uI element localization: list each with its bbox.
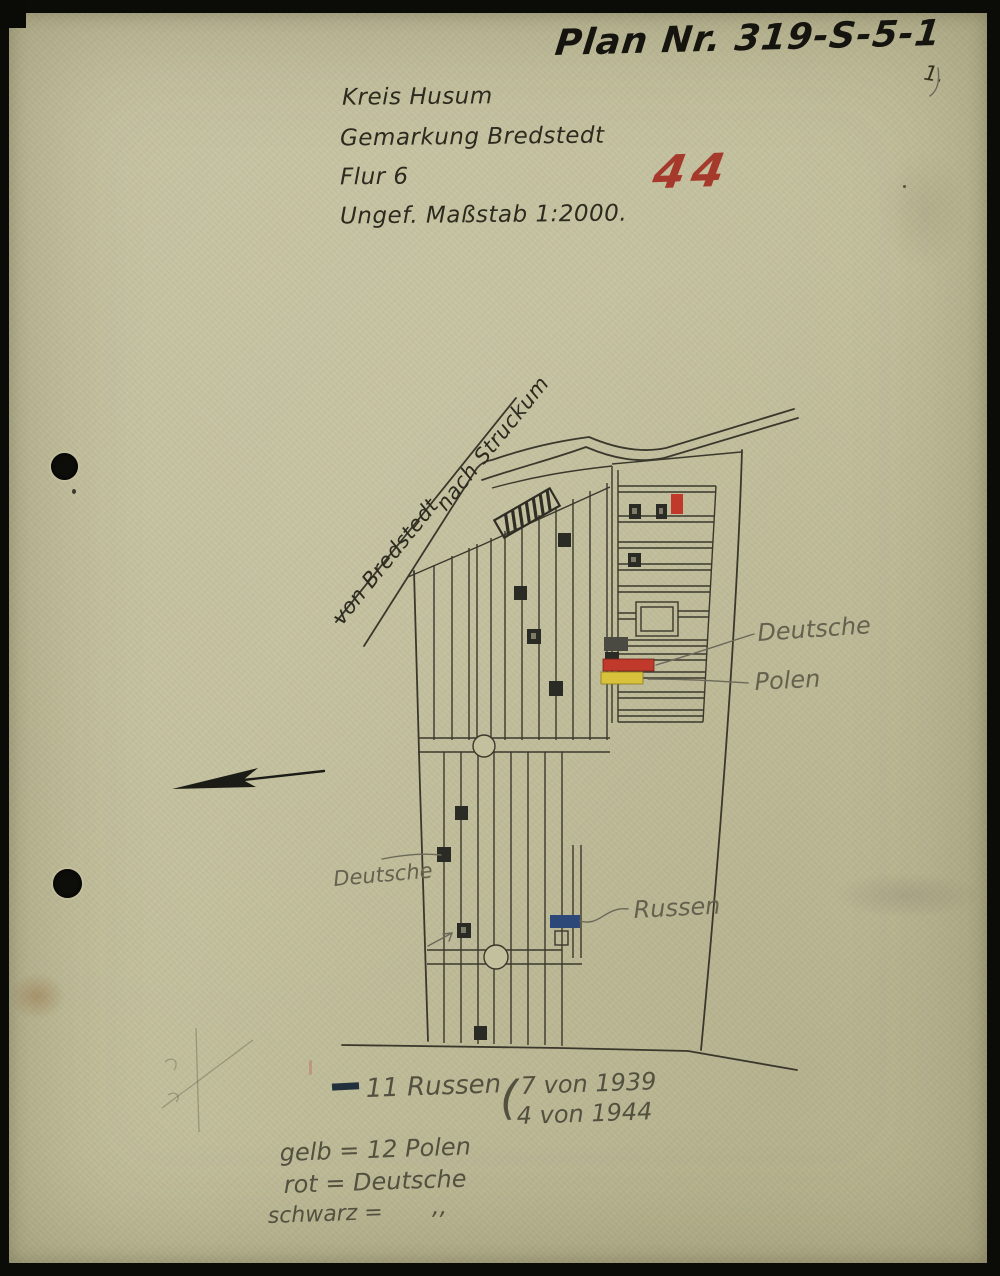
north-arrow bbox=[172, 768, 324, 789]
legend-russen-1944: 4 von 1944 bbox=[516, 1097, 653, 1130]
road-label-von-bredstedt: von Bredstedt bbox=[327, 494, 443, 630]
dark-bar bbox=[604, 637, 628, 651]
yellow-bar bbox=[601, 672, 643, 684]
pencil-scribbles bbox=[162, 1028, 253, 1132]
grave-markers bbox=[437, 494, 683, 1040]
legend-russen-count: 11 Russen bbox=[365, 1069, 501, 1104]
road-label-nach-struckum: nach Struckum bbox=[431, 372, 554, 515]
note-deutsche-lower: Deutsche bbox=[332, 858, 433, 891]
legend-schwarz: schwarz = bbox=[267, 1200, 383, 1229]
legend-russen-1939: 7 von 1939 bbox=[520, 1067, 657, 1100]
note-polen: Polen bbox=[754, 665, 821, 696]
path-grid bbox=[408, 466, 612, 1046]
red-bar bbox=[603, 659, 654, 671]
scanned-page: Plan Nr. 319-S-5-1 1. Kreis Husum Gemark… bbox=[0, 0, 1000, 1276]
blue-bar bbox=[550, 915, 580, 928]
red-grave-marker bbox=[671, 494, 683, 514]
plan-drawing: von Bredstedt nach Struckum Deutsche Pol… bbox=[0, 0, 1000, 1276]
chapel-building bbox=[494, 488, 559, 537]
legend-dash-swatch bbox=[332, 1082, 359, 1090]
legend-group: 11 Russen ( 7 von 1939 4 von 1944 gelb =… bbox=[267, 1067, 656, 1229]
legend-gelb-polen: gelb = 12 Polen bbox=[279, 1132, 471, 1167]
note-russen: Russen bbox=[633, 891, 721, 924]
note-deutsche-upper: Deutsche bbox=[756, 611, 871, 647]
legend-schwarz-ditto: ‚‚ bbox=[432, 1192, 447, 1220]
